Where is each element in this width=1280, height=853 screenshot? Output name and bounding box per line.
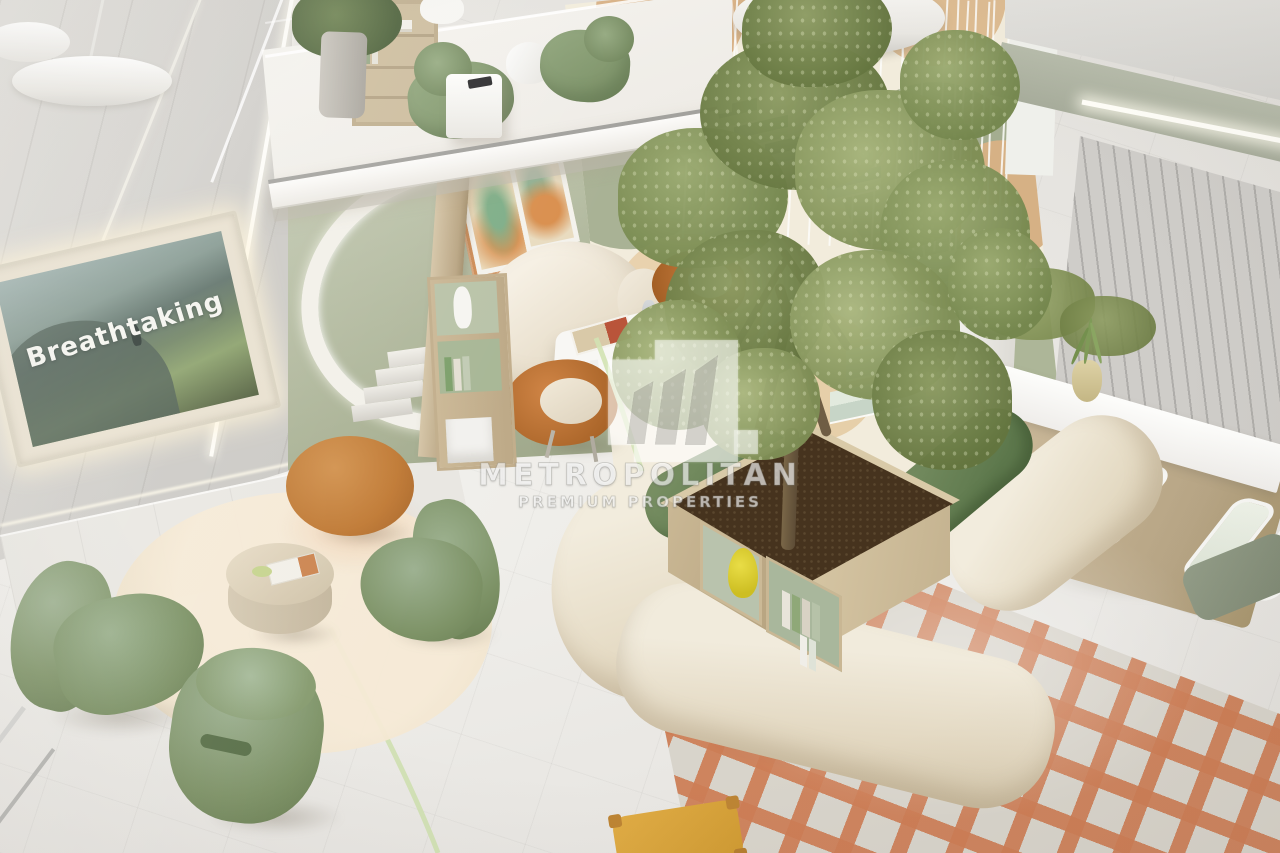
table-corner-icon — [725, 795, 740, 810]
tree-canopy-icon — [948, 228, 1052, 340]
tree-canopy-icon — [700, 348, 820, 460]
table-corner-icon — [733, 847, 748, 853]
tree-canopy-icon — [900, 30, 1020, 140]
book-spine-icon — [792, 594, 800, 634]
book-spine-icon — [782, 590, 790, 630]
book-spine-icon — [809, 638, 816, 671]
book-spine-icon — [800, 634, 807, 667]
table-corner-icon — [608, 814, 623, 829]
book-spine-icon — [802, 598, 810, 638]
yellow-vase — [728, 548, 758, 598]
small-dish-icon — [252, 566, 272, 577]
book-spine-icon — [812, 602, 820, 642]
orange-pouf — [286, 436, 414, 536]
render-canvas: Breathtaking — [0, 0, 1280, 853]
